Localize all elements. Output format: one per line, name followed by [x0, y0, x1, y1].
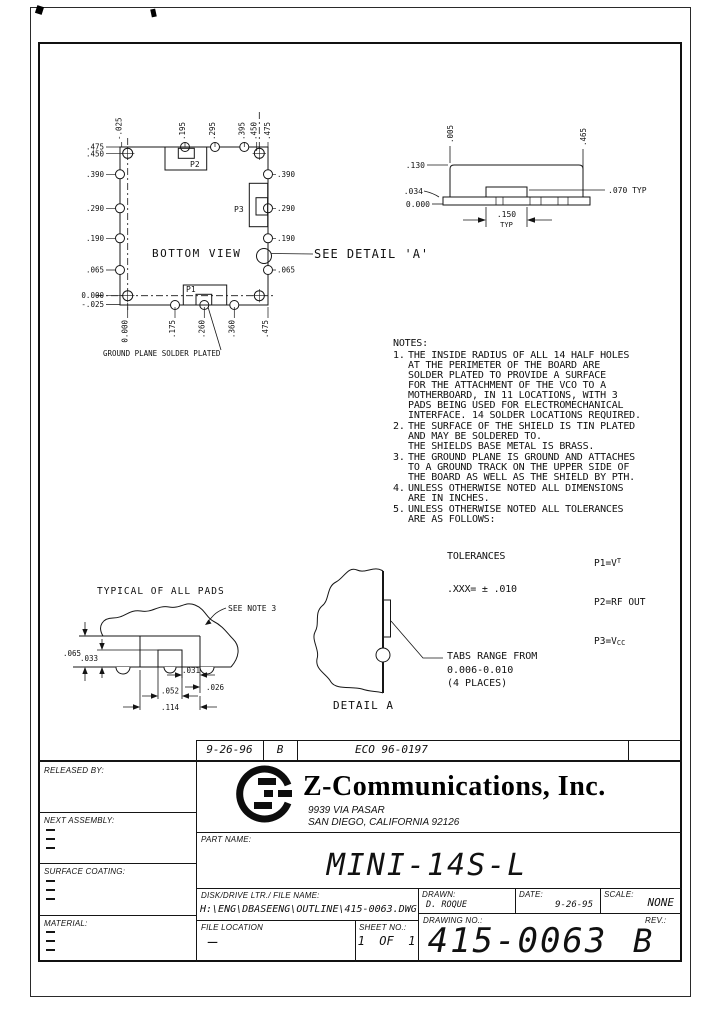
svg-text:.034: .034 — [404, 187, 423, 196]
rev-value: B — [630, 922, 655, 962]
file-location-label: FILE LOCATION — [201, 923, 263, 932]
side-view-dimensions: .070 TYP .005 .465 .130 .034 0.000 .150 … — [404, 125, 647, 229]
pin-legend-p2: P2=RF OUT — [594, 596, 645, 609]
detail-a-drawing: DETAIL A — [300, 558, 550, 718]
right-dimensions: .390 .290 .190 .065 — [272, 170, 296, 275]
drawn-label: DRAWN: — [422, 890, 456, 899]
svg-text:.065: .065 — [277, 266, 295, 275]
svg-text:.390: .390 — [277, 170, 296, 179]
released-by-label: RELEASED BY: — [44, 766, 104, 775]
note-3: 3.THE GROUND PLANE IS GROUND AND ATTACHE… — [393, 453, 681, 483]
svg-text:0.000: 0.000 — [81, 291, 104, 300]
detail-a-outline — [314, 569, 391, 693]
svg-text:.065: .065 — [63, 649, 81, 658]
note-1: 1.THE INSIDE RADIUS OF ALL 14 HALF HOLES… — [393, 351, 681, 421]
dash-mark — [46, 949, 55, 951]
dash-mark — [46, 880, 55, 882]
svg-text:.190: .190 — [86, 234, 105, 243]
svg-text:-.025: -.025 — [115, 117, 124, 140]
svg-text:-.025: -.025 — [81, 300, 104, 309]
date-label: DATE: — [519, 890, 543, 899]
file-path-value: H:\ENG\DBASEENG\OUTLINE\415-0063.DWG — [200, 904, 417, 915]
dash-mark — [46, 847, 55, 849]
svg-text:.260: .260 — [197, 320, 206, 339]
bottom-dimensions: 0.000 .175 .260 .360 .475 — [121, 307, 270, 343]
material-label: MATERIAL: — [44, 919, 87, 928]
note-5: 5.UNLESS OTHERWISE NOTED ALL TOLERANCES … — [393, 505, 681, 525]
dash-mark — [46, 898, 55, 900]
dash-mark — [46, 940, 55, 942]
svg-text:0.000: 0.000 — [121, 320, 130, 343]
file-row-line — [196, 920, 418, 921]
dash-mark — [46, 838, 55, 840]
logo-row-line — [196, 832, 682, 833]
see-detail-a-label: SEE DETAIL 'A' — [314, 247, 429, 261]
pad-p3-label: P3 — [234, 205, 244, 214]
pin-legend: P1=VT P2=RF OUT P3=VCC — [594, 529, 645, 676]
date-value: 9-26-95 — [515, 900, 593, 910]
svg-text:.465: .465 — [579, 128, 588, 146]
ground-plane-caption: GROUND PLANE SOLDER PLATED — [103, 349, 221, 358]
pad-p1-label: P1 — [186, 285, 196, 294]
detail-a-title: DETAIL A — [333, 699, 394, 712]
dash-mark — [46, 829, 55, 831]
note-4: 4.UNLESS OTHERWISE NOTED ALL DIMENSIONS … — [393, 484, 681, 504]
svg-text:.295: .295 — [208, 122, 217, 140]
svg-text:.190: .190 — [277, 234, 296, 243]
part-row-line — [196, 888, 682, 889]
svg-text:.390: .390 — [86, 170, 105, 179]
pad-detail-title: TYPICAL OF ALL PADS — [97, 586, 225, 597]
dash-mark — [46, 889, 55, 891]
svg-text:.065: .065 — [86, 266, 104, 275]
company-name: Z-Communications, Inc. — [303, 771, 606, 803]
left-col-line — [38, 812, 196, 813]
pin-legend-p1: P1=VT — [594, 555, 645, 570]
svg-text:TYP: TYP — [500, 221, 513, 229]
left-dimensions: .475 .450 .390 .290 .190 .065 0.000 -.02… — [81, 143, 123, 310]
left-col-line — [38, 915, 196, 916]
notes-title: NOTES: — [393, 339, 681, 349]
z-communications-logo — [234, 764, 298, 824]
file-location-value: — — [208, 932, 218, 951]
eco-number: ECO 96-0197 — [355, 743, 428, 756]
file-name-label: DISK/DRIVE LTR./ FILE NAME: — [201, 891, 320, 900]
eco-rev: B — [263, 743, 297, 756]
surface-coating-label: SURFACE COATING: — [44, 867, 125, 876]
svg-text:.395: .395 — [237, 122, 246, 140]
svg-text:.150: .150 — [497, 210, 516, 219]
bottom-view-title: BOTTOM VIEW — [152, 247, 241, 260]
drawing-no-line — [418, 913, 682, 914]
svg-text:.070 TYP: .070 TYP — [608, 186, 647, 195]
drawing-no-value: 415-0063 — [410, 921, 625, 961]
pad-section-outline — [73, 604, 238, 674]
pad-p2-label: P2 — [190, 160, 200, 169]
svg-text:.033: .033 — [80, 654, 98, 663]
engineering-drawing-sheet: P2 P3 P1 BOTTOM VIEW .475 .450 .390 .290… — [0, 0, 720, 1012]
svg-text:.175: .175 — [168, 320, 177, 338]
svg-text:.005: .005 — [446, 125, 455, 143]
pin-legend-p3: P3=VCC — [594, 635, 645, 650]
svg-text:.290: .290 — [86, 204, 105, 213]
sheet-no-label: SHEET NO.: — [359, 923, 406, 932]
eco-divider — [628, 740, 629, 760]
svg-text:.475: .475 — [261, 320, 270, 338]
svg-text:.026: .026 — [206, 683, 225, 692]
part-name-label: PART NAME: — [201, 835, 251, 844]
eco-divider — [297, 740, 298, 760]
svg-text:0.000: 0.000 — [406, 200, 430, 209]
eco-row-top-line — [196, 740, 682, 741]
pad-p3: P3 — [234, 183, 268, 226]
dash-mark — [46, 931, 55, 933]
company-address-line2: SAN DIEGO, CALIFORNIA 92126 — [308, 817, 459, 828]
next-assembly-label: NEXT ASSEMBLY: — [44, 816, 114, 825]
see-note-3-label: SEE NOTE 3 — [228, 604, 276, 613]
svg-text:.052: .052 — [161, 687, 179, 696]
pad-detail-drawing: TYPICAL OF ALL PADS SEE NOTE 3 .065 .033 — [55, 578, 320, 726]
svg-text:.360: .360 — [227, 320, 236, 339]
bottom-view-drawing: P2 P3 P1 BOTTOM VIEW .475 .450 .390 .290… — [80, 88, 360, 368]
title-block-top-line — [38, 760, 682, 762]
company-address-line1: 9939 VIA PASAR — [308, 805, 385, 816]
svg-text:.114: .114 — [161, 703, 180, 712]
sheet-no-value: 1 OF 1 — [355, 934, 418, 948]
part-name-value: MINI-14S-L — [196, 848, 658, 883]
svg-text:.130: .130 — [406, 161, 425, 170]
note-2: 2.THE SURFACE OF THE SHIELD IS TIN PLATE… — [393, 422, 681, 452]
svg-text:.450: .450 — [86, 149, 105, 158]
shield-outline — [443, 165, 590, 205]
svg-text:.195: .195 — [178, 122, 187, 140]
left-col-line — [38, 863, 196, 864]
drawn-by-value: D. ROQUE — [426, 900, 467, 910]
svg-text:.031: .031 — [182, 666, 200, 675]
svg-text:.475: .475 — [263, 122, 272, 140]
side-view-drawing: .070 TYP .005 .465 .130 .034 0.000 .150 … — [393, 98, 670, 240]
eco-date: 9-26-96 — [196, 743, 263, 756]
svg-text:.450: .450 — [250, 121, 259, 140]
svg-text:.290: .290 — [277, 204, 296, 213]
tabs-range-callout: TABS RANGE FROM 0.006-0.010 (4 PLACES) — [447, 650, 537, 691]
scale-value: NONE — [600, 896, 674, 909]
